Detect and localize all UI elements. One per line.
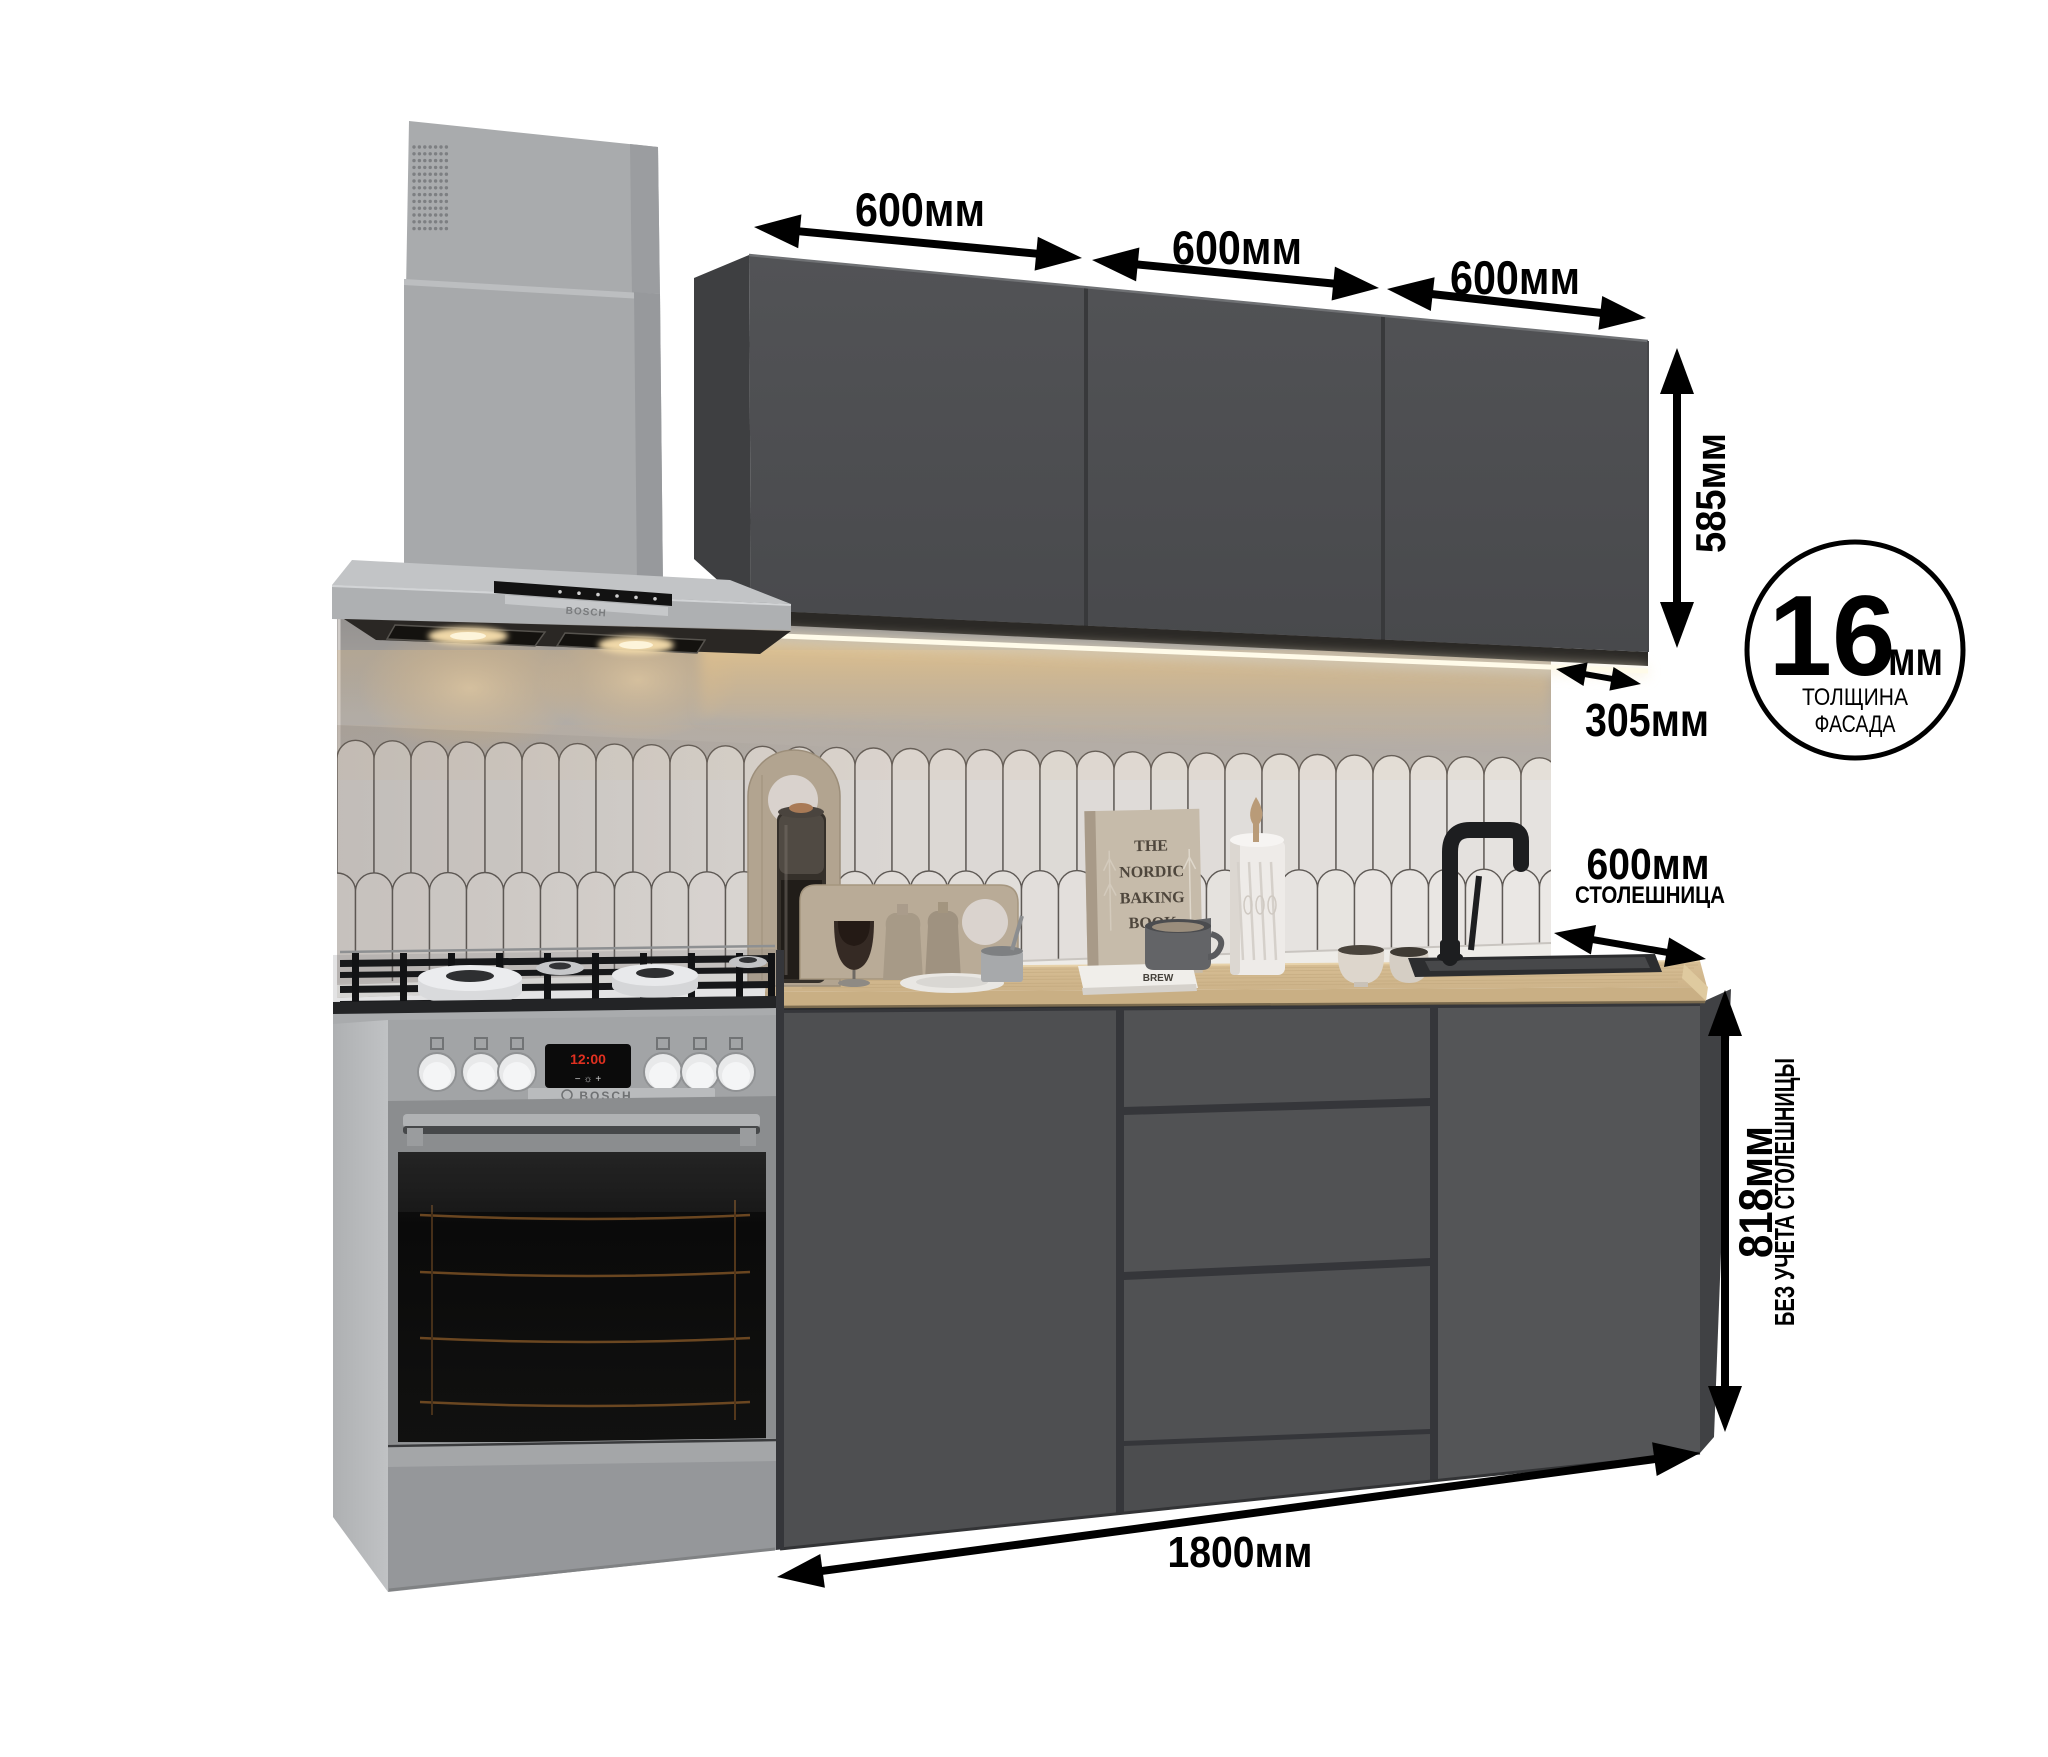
svg-text:BAKING: BAKING: [1120, 889, 1186, 907]
svg-text:СТОЛЕШНИЦА: СТОЛЕШНИЦА: [1575, 882, 1725, 909]
svg-text:305мм: 305мм: [1585, 694, 1709, 746]
svg-text:600мм: 600мм: [1450, 251, 1580, 304]
svg-text:1800мм: 1800мм: [1168, 1528, 1313, 1577]
svg-text:600мм: 600мм: [1172, 221, 1302, 274]
svg-text:БЕЗ УЧЕТА СТОЛЕШНИЦЫ: БЕЗ УЧЕТА СТОЛЕШНИЦЫ: [1769, 1058, 1800, 1326]
svg-text:600мм: 600мм: [855, 183, 985, 236]
svg-text:BREW: BREW: [1143, 973, 1174, 984]
svg-text:NORDIC: NORDIC: [1119, 863, 1184, 881]
svg-text:16: 16: [1769, 573, 1896, 700]
svg-text:12:00: 12:00: [570, 1051, 606, 1067]
svg-text:мм: мм: [1888, 633, 1943, 686]
svg-text:− ☼ +: − ☼ +: [575, 1074, 602, 1085]
svg-text:ТОЛЩИНА: ТОЛЩИНА: [1802, 684, 1908, 711]
svg-text:THE: THE: [1134, 837, 1168, 855]
svg-text:585мм: 585мм: [1687, 433, 1734, 553]
svg-text:ФАСАДА: ФАСАДА: [1815, 711, 1896, 738]
